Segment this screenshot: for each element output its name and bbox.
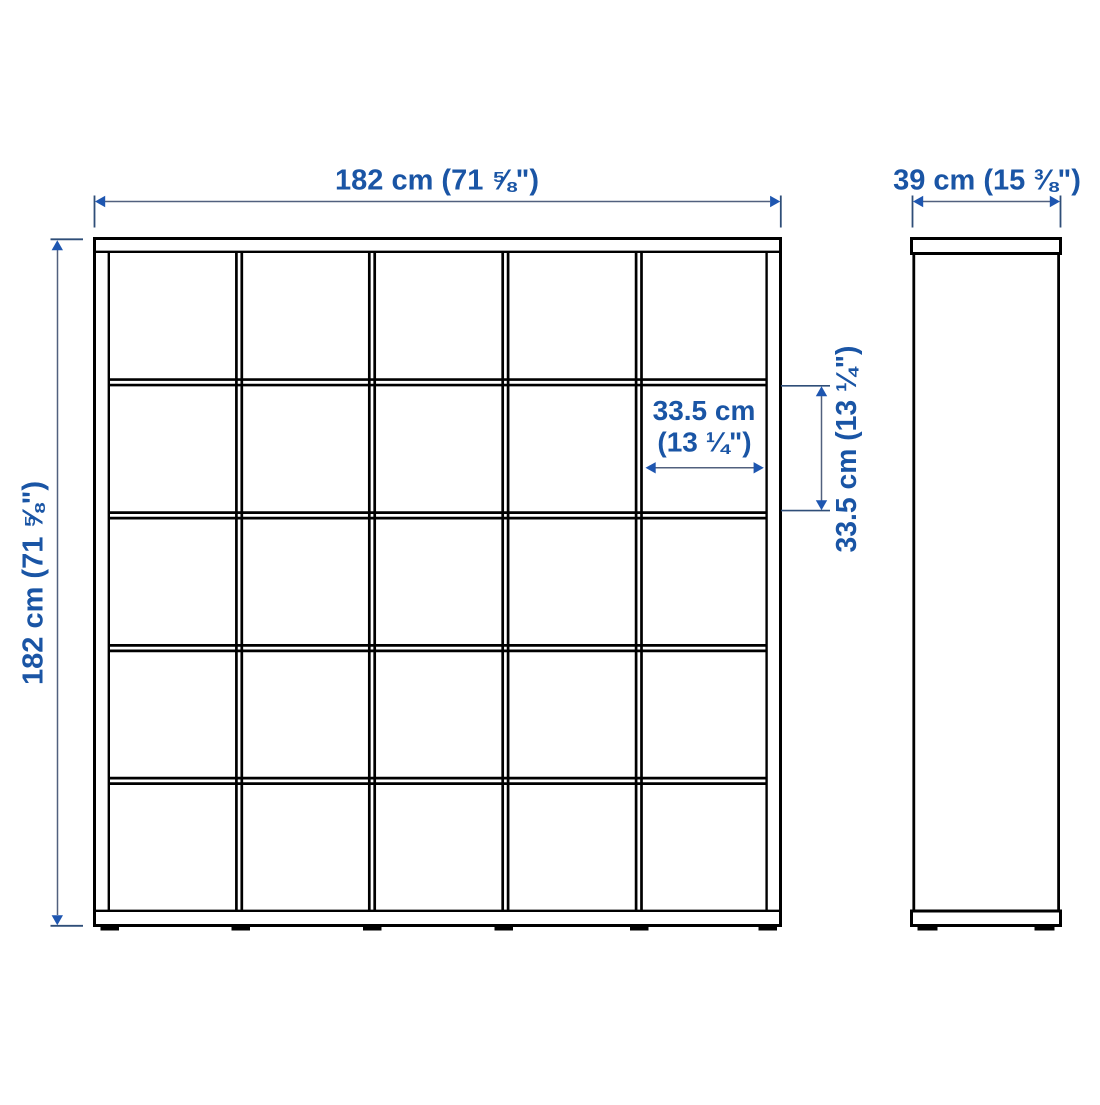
svg-text:182 cm (71 ⅝"): 182 cm (71 ⅝") [335,165,539,197]
svg-text:(13 ¼"): (13 ¼") [657,427,751,458]
svg-text:33.5 cm: 33.5 cm [653,395,756,426]
svg-text:182 cm (71 ⅝"): 182 cm (71 ⅝") [18,481,50,685]
svg-text:33.5 cm (13 ¼"): 33.5 cm (13 ¼") [830,346,862,553]
svg-text:39 cm (15 ⅜"): 39 cm (15 ⅜") [893,165,1081,197]
